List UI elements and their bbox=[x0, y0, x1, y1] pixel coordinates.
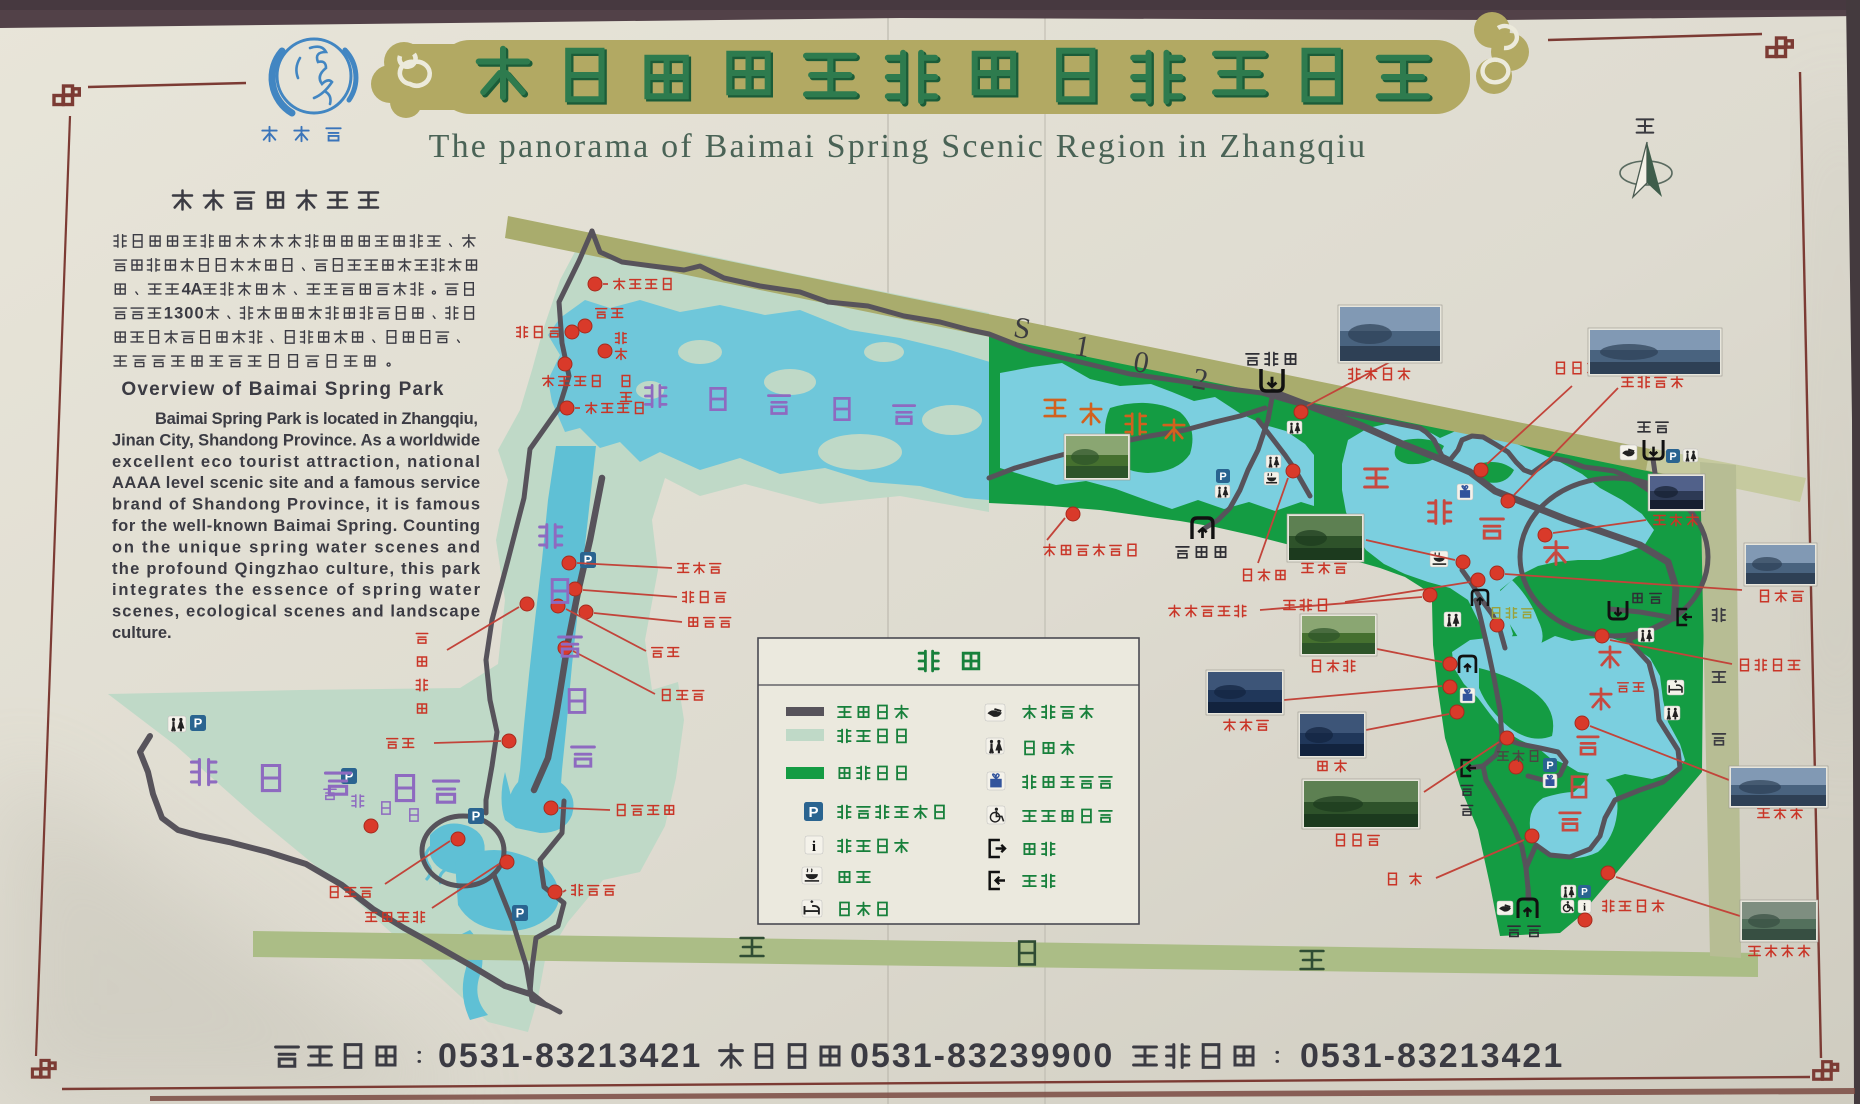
svg-text:Baimai Spring Park is located: Baimai Spring Park is located in Zhangqi… bbox=[155, 410, 478, 428]
svg-text:P: P bbox=[516, 905, 525, 920]
svg-text:P: P bbox=[194, 715, 203, 730]
svg-text:i: i bbox=[812, 839, 816, 855]
svg-text:P: P bbox=[584, 552, 593, 567]
svg-text:0531-83239900: 0531-83239900 bbox=[850, 1037, 1114, 1075]
svg-text:the profound Qingzhao culture,: the profound Qingzhao culture, this park bbox=[112, 560, 481, 578]
svg-text:excellent eco tourist attracti: excellent eco tourist attraction, nation… bbox=[112, 453, 480, 471]
svg-text:scenes, ecological scenes and: scenes, ecological scenes and landscape bbox=[112, 603, 480, 621]
svg-text:P: P bbox=[1219, 471, 1226, 483]
svg-text:Jinan City, Shandong Province.: Jinan City, Shandong Province. As a worl… bbox=[112, 431, 480, 449]
svg-text:P: P bbox=[808, 804, 818, 821]
svg-text:A: A bbox=[191, 281, 203, 299]
svg-text:1: 1 bbox=[164, 305, 173, 323]
svg-text:P: P bbox=[1546, 760, 1553, 772]
svg-text:3: 3 bbox=[174, 305, 183, 323]
svg-text:on the unique spring water sce: on the unique spring water scenes and bbox=[112, 538, 480, 556]
svg-text:brand of Shandong Province, it: brand of Shandong Province, it is famous bbox=[112, 496, 480, 514]
svg-text:P: P bbox=[472, 808, 481, 823]
svg-text:P: P bbox=[1581, 887, 1588, 898]
svg-text:0531-83213421: 0531-83213421 bbox=[1300, 1037, 1564, 1075]
svg-text:Overview of Baimai Spring Park: Overview of Baimai Spring Park bbox=[121, 379, 444, 400]
svg-text:0531-83213421: 0531-83213421 bbox=[438, 1037, 702, 1075]
svg-text:P: P bbox=[1669, 451, 1676, 463]
svg-text:0: 0 bbox=[184, 305, 193, 323]
svg-text:AAAA level scenic site and a f: AAAA level scenic site and a famous serv… bbox=[112, 474, 480, 492]
svg-text:0: 0 bbox=[195, 305, 204, 323]
svg-text:The panorama of Baimai Spring: The panorama of Baimai Spring Scenic Reg… bbox=[429, 128, 1368, 165]
svg-text:for the well-known Baimai Spri: for the well-known Baimai Spring. Counti… bbox=[112, 517, 480, 535]
svg-text:i: i bbox=[1583, 902, 1586, 914]
svg-text:culture.: culture. bbox=[112, 624, 172, 642]
